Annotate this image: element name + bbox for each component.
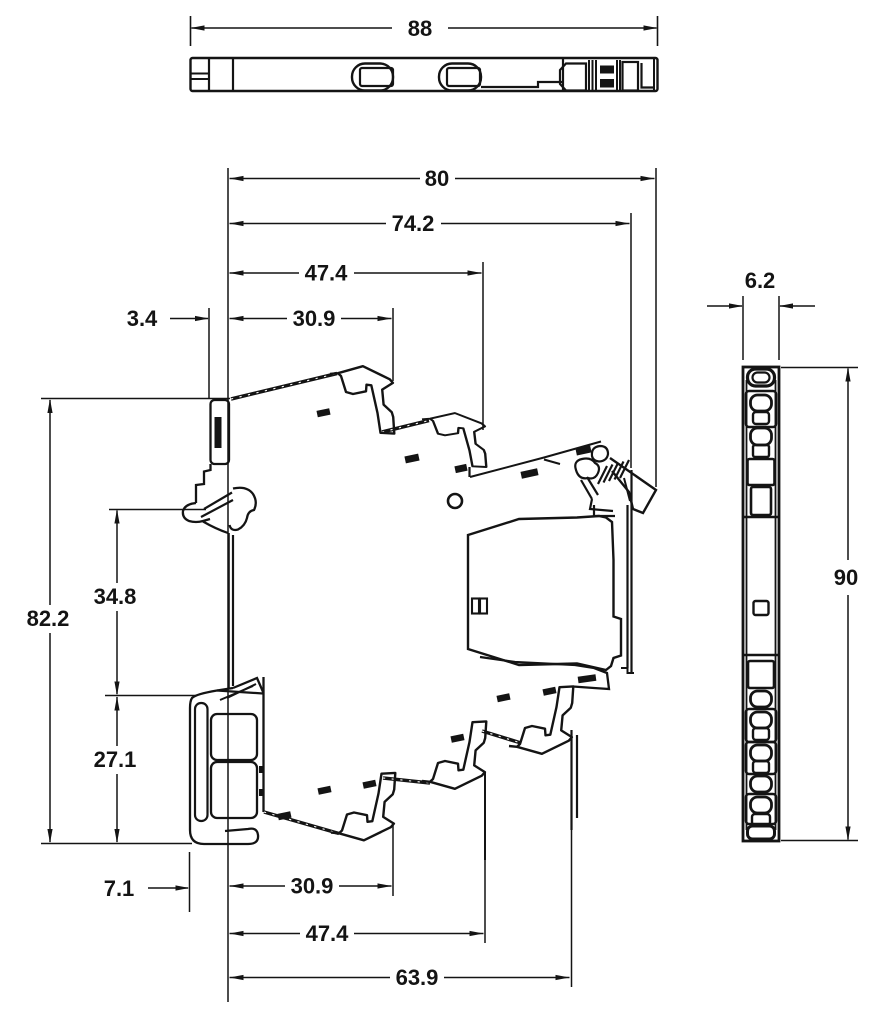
- svg-text:47.4: 47.4: [305, 261, 349, 286]
- svg-text:63.9: 63.9: [396, 965, 439, 990]
- svg-text:80: 80: [425, 166, 449, 191]
- svg-text:88: 88: [408, 16, 432, 41]
- svg-text:82.2: 82.2: [27, 606, 70, 631]
- svg-text:6.2: 6.2: [745, 268, 776, 293]
- svg-text:30.9: 30.9: [291, 874, 334, 899]
- svg-text:90: 90: [834, 565, 858, 590]
- svg-text:27.1: 27.1: [94, 747, 137, 772]
- svg-text:74.2: 74.2: [392, 211, 435, 236]
- svg-text:47.4: 47.4: [306, 921, 350, 946]
- svg-text:7.1: 7.1: [104, 876, 135, 901]
- svg-text:34.8: 34.8: [94, 584, 137, 609]
- svg-text:30.9: 30.9: [293, 306, 336, 331]
- svg-text:3.4: 3.4: [127, 306, 158, 331]
